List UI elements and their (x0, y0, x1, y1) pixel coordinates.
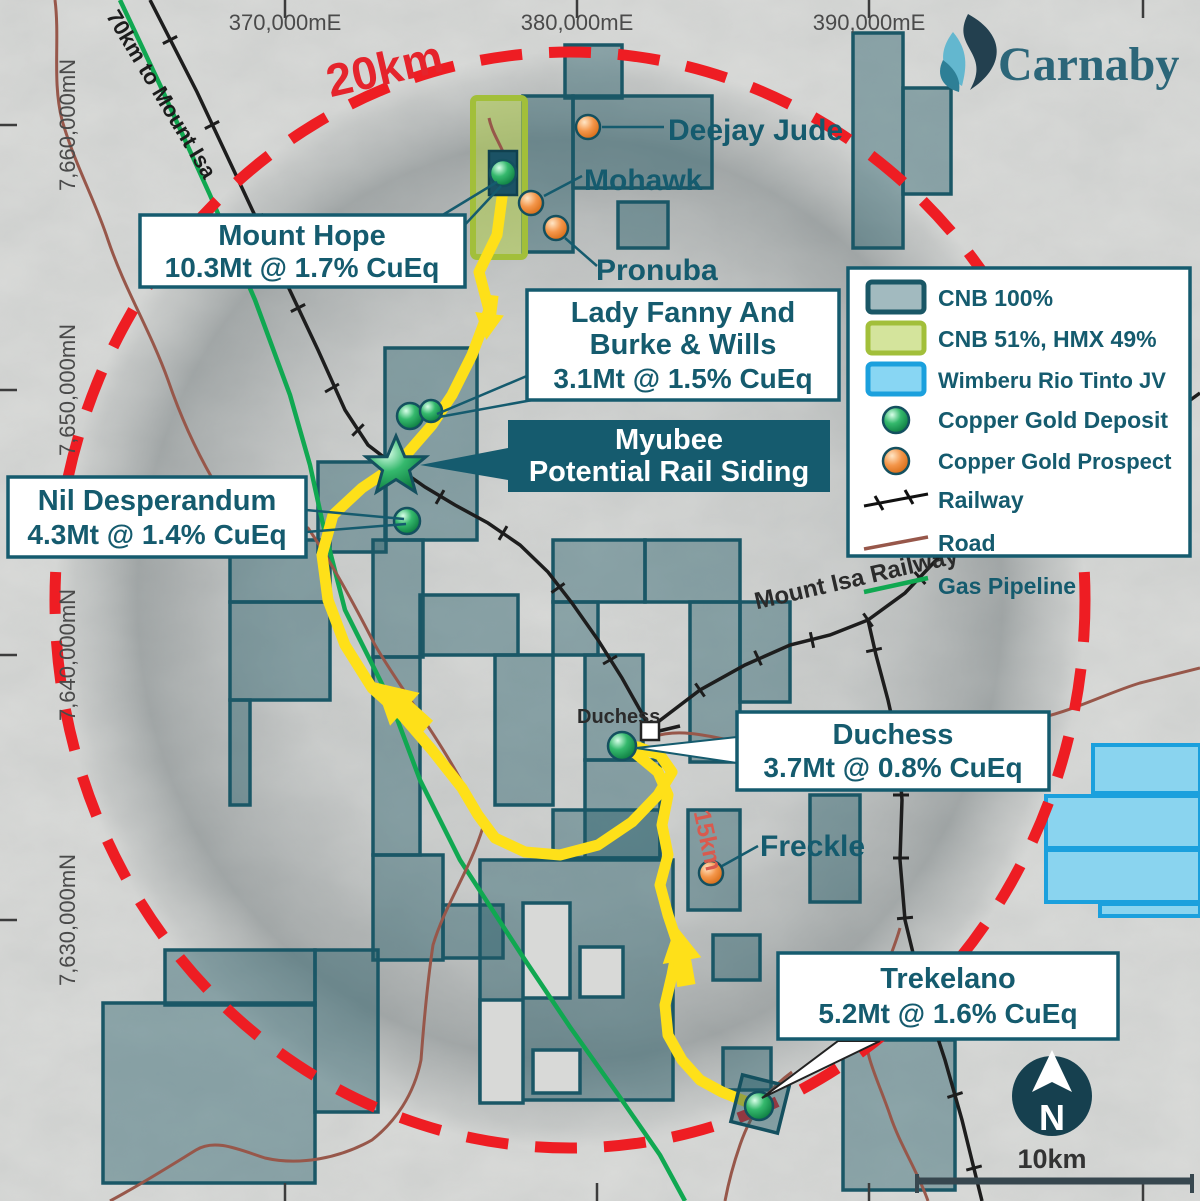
north-arrow: N 10km (1012, 1050, 1092, 1174)
mount-hope-resource: 10.3Mt @ 1.7% CuEq (165, 252, 440, 283)
mount-hope-box: Mount Hope 10.3Mt @ 1.7% CuEq (140, 215, 465, 287)
lady-fanny-box: Lady Fanny And Burke & Wills 3.1Mt @ 1.5… (527, 290, 839, 400)
duchess-resource: 3.7Mt @ 0.8% CuEq (763, 752, 1022, 783)
prospect-deejay-jude (576, 115, 600, 139)
lady-fanny-name: Lady Fanny And (571, 297, 796, 329)
tenement-map: Deejay Jude Mohawk Pronuba Freckle 20km … (0, 0, 1200, 1201)
nil-desperandum-name: Nil Desperandum (38, 485, 277, 517)
myubee-name: Myubee (615, 424, 723, 456)
mount-hope-name: Mount Hope (218, 220, 386, 252)
nil-desperandum-resource: 4.3Mt @ 1.4% CuEq (27, 519, 286, 550)
deposit-trekelano (745, 1092, 773, 1120)
label-mohawk: Mohawk (584, 164, 703, 197)
legend-label-railway: Railway (938, 487, 1024, 513)
myubee-subtitle: Potential Rail Siding (529, 456, 809, 488)
legend-label-hmx: CNB 51%, HMX 49% (938, 326, 1157, 352)
legend-swatch-cnb (868, 282, 924, 312)
trekelano-name: Trekelano (880, 963, 1015, 995)
legend-label-jv: Wimberu Rio Tinto JV (938, 368, 1166, 393)
legend-label-cnb: CNB 100% (938, 285, 1053, 311)
legend-label-road: Road (938, 530, 996, 556)
trekelano-resource: 5.2Mt @ 1.6% CuEq (818, 998, 1077, 1029)
deposit-duchess (608, 732, 636, 760)
duchess-name: Duchess (833, 719, 954, 751)
northing-7650000: 7,650,000mN (55, 324, 80, 456)
easting-390000: 390,000mE (813, 10, 926, 35)
legend-prospect-icon (883, 448, 909, 474)
myubee-box: Myubee Potential Rail Siding (508, 420, 830, 492)
legend: CNB 100% CNB 51%, HMX 49% Wimberu Rio Ti… (848, 268, 1190, 599)
legend-label-deposit: Copper Gold Deposit (938, 407, 1168, 433)
legend-swatch-hmx (868, 323, 924, 353)
map-canvas: Deejay Jude Mohawk Pronuba Freckle 20km … (0, 0, 1200, 1201)
label-freckle: Freckle (760, 830, 865, 863)
deposit-nil-desperandum (394, 508, 420, 534)
nil-desperandum-box: Nil Desperandum 4.3Mt @ 1.4% CuEq (8, 477, 306, 557)
north-letter: N (1039, 1097, 1065, 1138)
label-duchess-town: Duchess (577, 706, 660, 728)
label-pronuba: Pronuba (596, 254, 718, 287)
deposit-mount-hope (490, 160, 516, 186)
deposit-burke-wills (420, 400, 442, 422)
lady-fanny-resource: 3.1Mt @ 1.5% CuEq (553, 363, 812, 394)
brand-name: Carnaby (998, 38, 1179, 91)
northing-7640000: 7,640,000mN (55, 589, 80, 721)
duchess-box: Duchess 3.7Mt @ 0.8% CuEq (737, 712, 1049, 790)
legend-swatch-jv (868, 364, 924, 394)
scale-label: 10km (1017, 1144, 1086, 1174)
legend-deposit-icon (883, 407, 909, 433)
easting-380000: 380,000mE (521, 10, 634, 35)
northing-7660000: 7,660,000mN (55, 59, 80, 191)
legend-label-prospect: Copper Gold Prospect (938, 449, 1172, 474)
prospect-pronuba (544, 216, 568, 240)
northing-7630000: 7,630,000mN (55, 854, 80, 986)
legend-label-pipeline: Gas Pipeline (938, 573, 1076, 599)
prospect-mohawk (519, 191, 543, 215)
trekelano-box: Trekelano 5.2Mt @ 1.6% CuEq (778, 953, 1118, 1039)
lady-fanny-name2: Burke & Wills (590, 329, 777, 361)
label-deejay-jude: Deejay Jude (668, 114, 843, 147)
deposit-lady-fanny (397, 403, 423, 429)
easting-370000: 370,000mE (229, 10, 342, 35)
